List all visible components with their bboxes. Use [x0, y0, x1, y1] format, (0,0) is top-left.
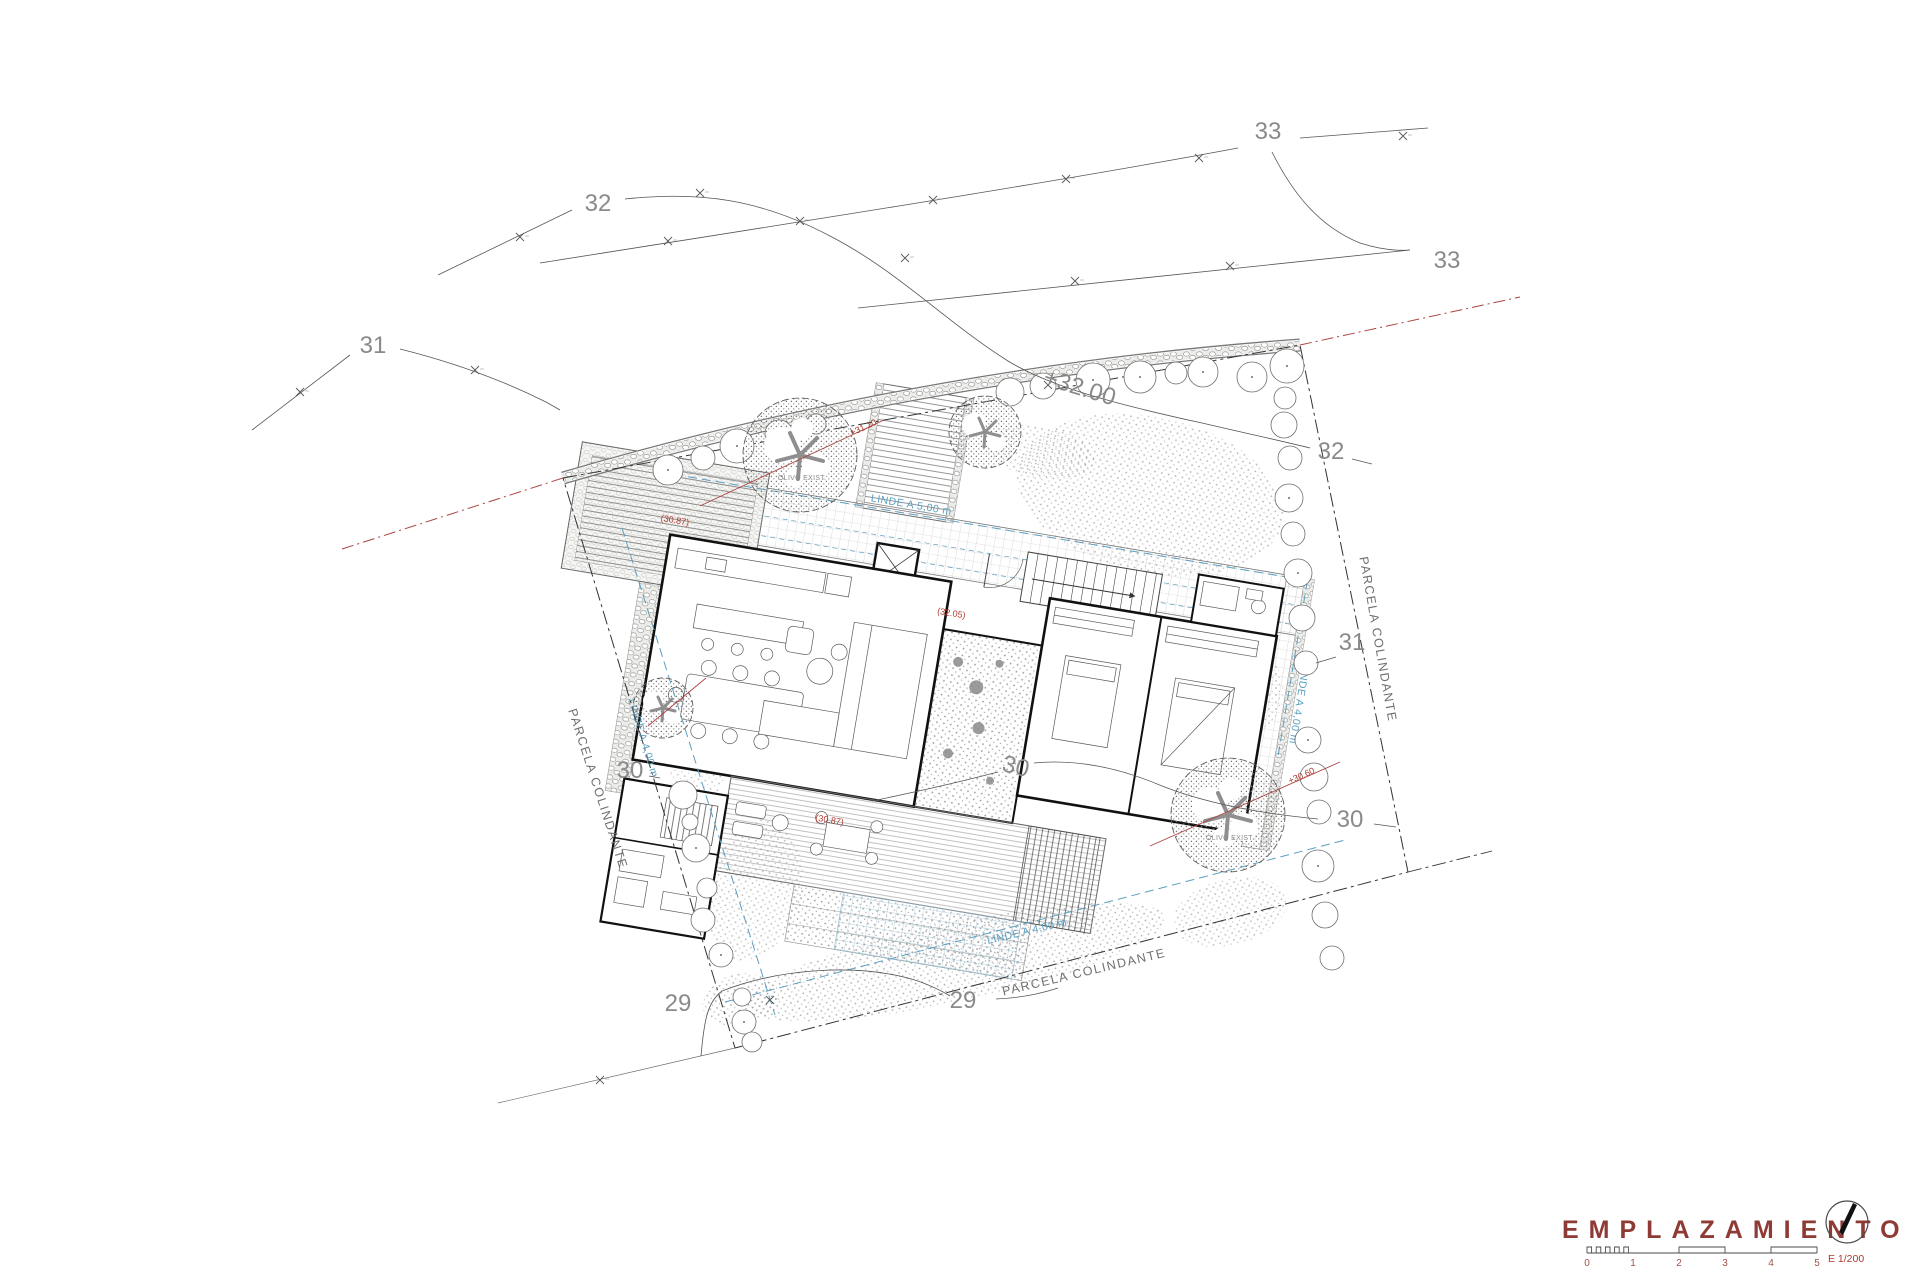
scale-ticks: 0 1 2 3 4 5: [1584, 1258, 1820, 1269]
label-33-right: 33: [1434, 247, 1461, 274]
label-30-left: 30: [617, 757, 644, 784]
scale-tick-5: 5: [1814, 1258, 1820, 1269]
scale-tick-1: 1: [1630, 1258, 1636, 1269]
scale-bar: [1587, 1247, 1817, 1253]
label-31-left: 31: [360, 332, 387, 359]
scale-tick-2: 2: [1676, 1258, 1682, 1269]
olive-tree-center: [949, 396, 1021, 468]
olive-bottom-label: OLIVO EXIST.: [1206, 835, 1254, 842]
label-32-left: 32: [585, 190, 612, 217]
scale-tick-4: 4: [1768, 1258, 1774, 1269]
label-31-right: 31: [1339, 629, 1366, 656]
label-32-right: 32: [1318, 438, 1345, 465]
olive-tree-left: [633, 678, 693, 738]
scale-label: E 1/200: [1828, 1253, 1864, 1265]
contour-33-line: [540, 148, 1238, 263]
label-33-top: 33: [1255, 118, 1282, 145]
label-30-right: 30: [1337, 806, 1364, 833]
living-room: [633, 535, 952, 807]
label-29-bottom: 29: [950, 987, 977, 1014]
label-29-left: 29: [665, 990, 692, 1017]
olive-tree-top: OLIVO EXIST.: [743, 398, 857, 512]
scale-tick-3: 3: [1722, 1258, 1728, 1269]
scale-tick-0: 0: [1584, 1258, 1590, 1269]
contour-33b-line: [858, 250, 1410, 308]
olive-top-label: OLIVO EXIST.: [778, 475, 826, 482]
garden-steps: [1013, 826, 1100, 933]
title-block: EMPLAZAMIENTO 0 1 2 3 4 5 E 1/200: [1562, 1201, 1910, 1269]
site-plan-sheet: LINDE A 5,00 m LINDE A 4,00 m (30.87) (3…: [0, 0, 1920, 1280]
site-plan-drawing: LINDE A 5,00 m LINDE A 4,00 m (30.87) (3…: [0, 0, 1920, 1280]
adjacent-parcel-line: [498, 1048, 735, 1103]
olive-tree-bottom: OLIVO EXIST.: [1171, 758, 1285, 872]
contour-branch: [1272, 152, 1410, 250]
